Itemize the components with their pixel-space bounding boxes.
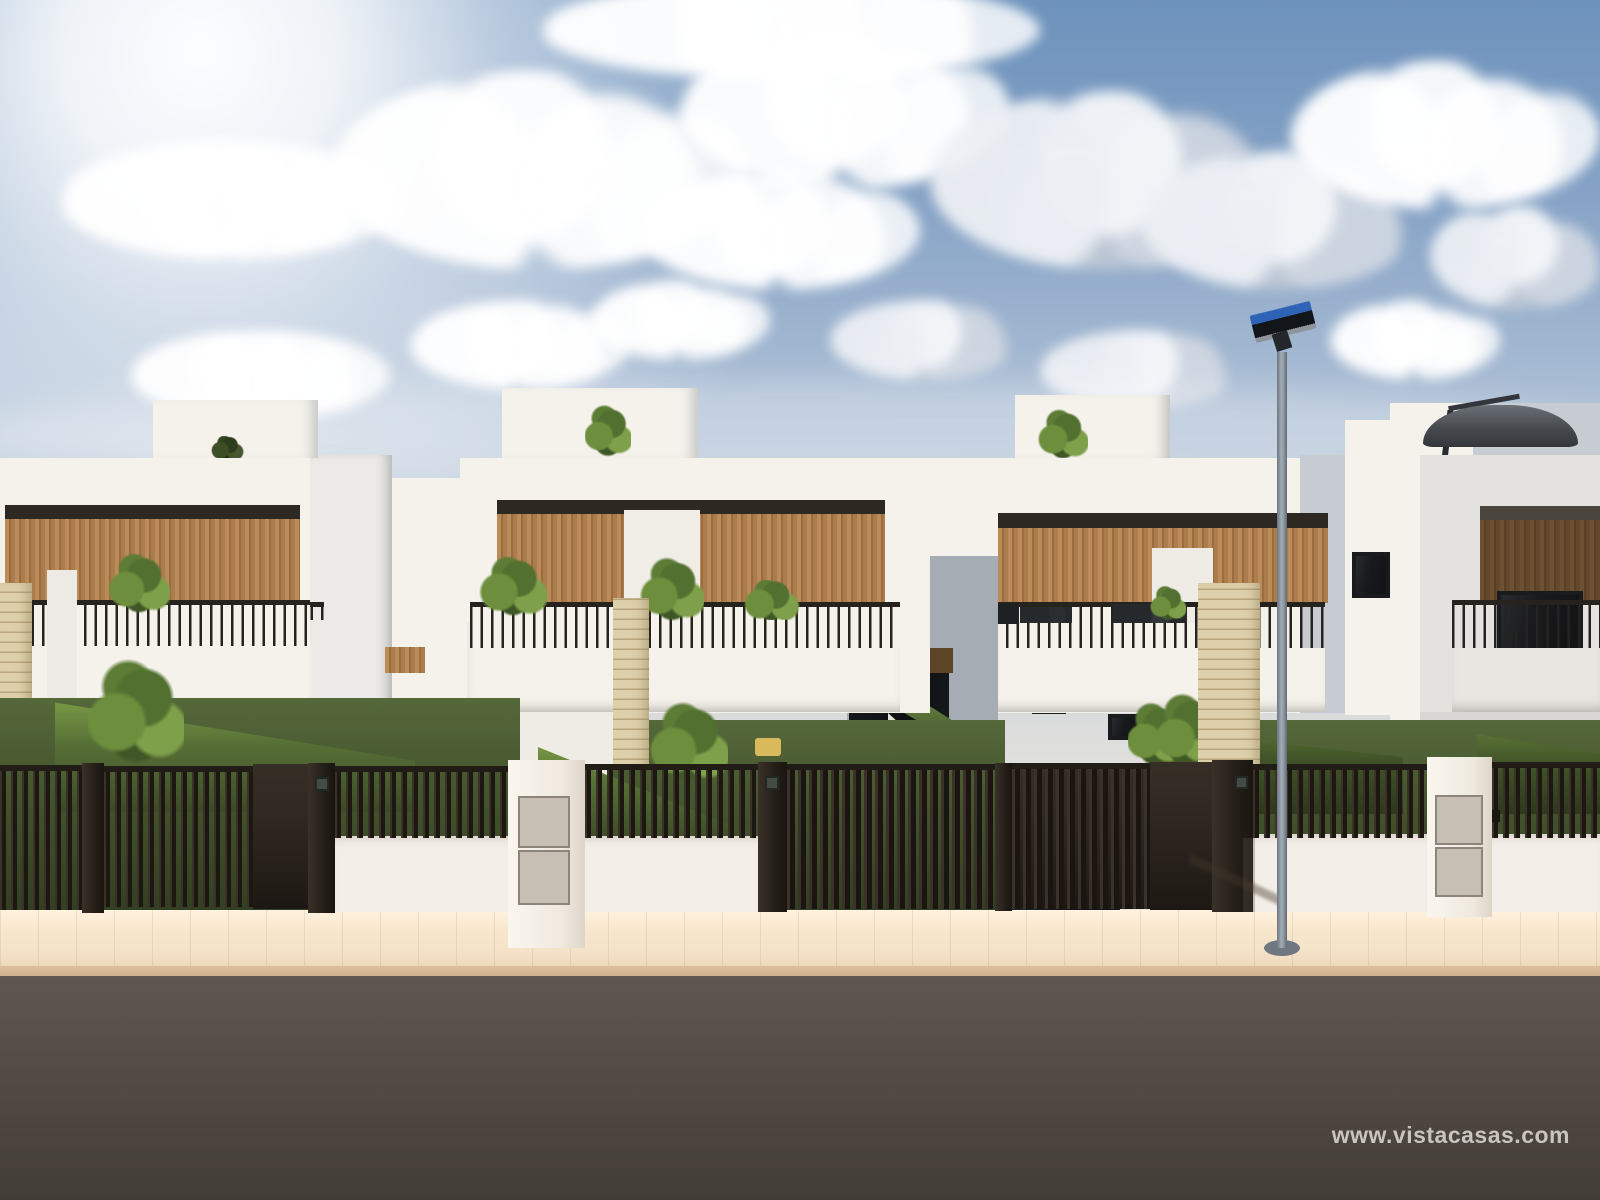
roof-fascia <box>5 505 300 519</box>
garden-plant <box>88 656 184 766</box>
watermark: www.vistacasas.com <box>1332 1122 1570 1149</box>
link-building <box>392 478 467 713</box>
mailbox-panel <box>1435 795 1483 845</box>
wood-cladding <box>1480 520 1600 602</box>
terrace-furniture <box>1020 607 1072 623</box>
cloud <box>590 280 770 360</box>
terrace-plant <box>742 580 800 620</box>
fence <box>1492 762 1600 838</box>
building-block-a-side <box>310 455 392 713</box>
gate-panel <box>1150 762 1212 910</box>
terrace-parapet <box>1452 648 1600 712</box>
fence-post <box>82 763 104 913</box>
intercom-keypad <box>315 777 329 791</box>
mailbox-panel <box>518 850 570 905</box>
cloud <box>640 170 920 290</box>
interior-accent <box>755 738 781 756</box>
gate <box>104 766 253 907</box>
render-canvas: www.vistacasas.com <box>0 0 1600 1200</box>
cloud <box>1430 200 1600 310</box>
terrace-plant <box>640 556 704 622</box>
gate-latch <box>1492 810 1500 822</box>
fence <box>335 766 510 838</box>
window <box>1352 552 1390 598</box>
lamp-shadow-wall <box>1243 838 1255 912</box>
stone-pillar <box>1198 583 1260 770</box>
rooftop-plant <box>210 436 244 460</box>
road <box>0 976 1600 1200</box>
street-lamp-pole <box>1277 352 1287 948</box>
rooftop-plant <box>1038 408 1088 460</box>
roof-fascia <box>1480 506 1600 520</box>
terrace-plant <box>108 552 170 614</box>
cloud <box>1330 300 1500 380</box>
mailbox-panel <box>518 796 570 848</box>
gate-panel <box>253 764 308 909</box>
intercom-keypad <box>765 776 779 790</box>
fence-post <box>995 763 1012 911</box>
cloud <box>1290 60 1600 210</box>
stone-pillar <box>613 598 649 770</box>
terrace-railing <box>1452 600 1600 648</box>
wood-cladding <box>385 647 425 673</box>
rooftop-plant <box>585 403 631 458</box>
terrace-plant <box>1150 585 1186 621</box>
terrace-plant <box>478 556 548 616</box>
intercom-keypad <box>1235 776 1248 789</box>
fence <box>585 764 758 838</box>
mailbox-panel <box>1435 847 1483 897</box>
sidewalk <box>0 910 1600 968</box>
gate-driveway <box>787 764 995 909</box>
fence <box>0 765 82 910</box>
cloud <box>830 300 1020 380</box>
gate-driveway-slats <box>1012 763 1150 909</box>
